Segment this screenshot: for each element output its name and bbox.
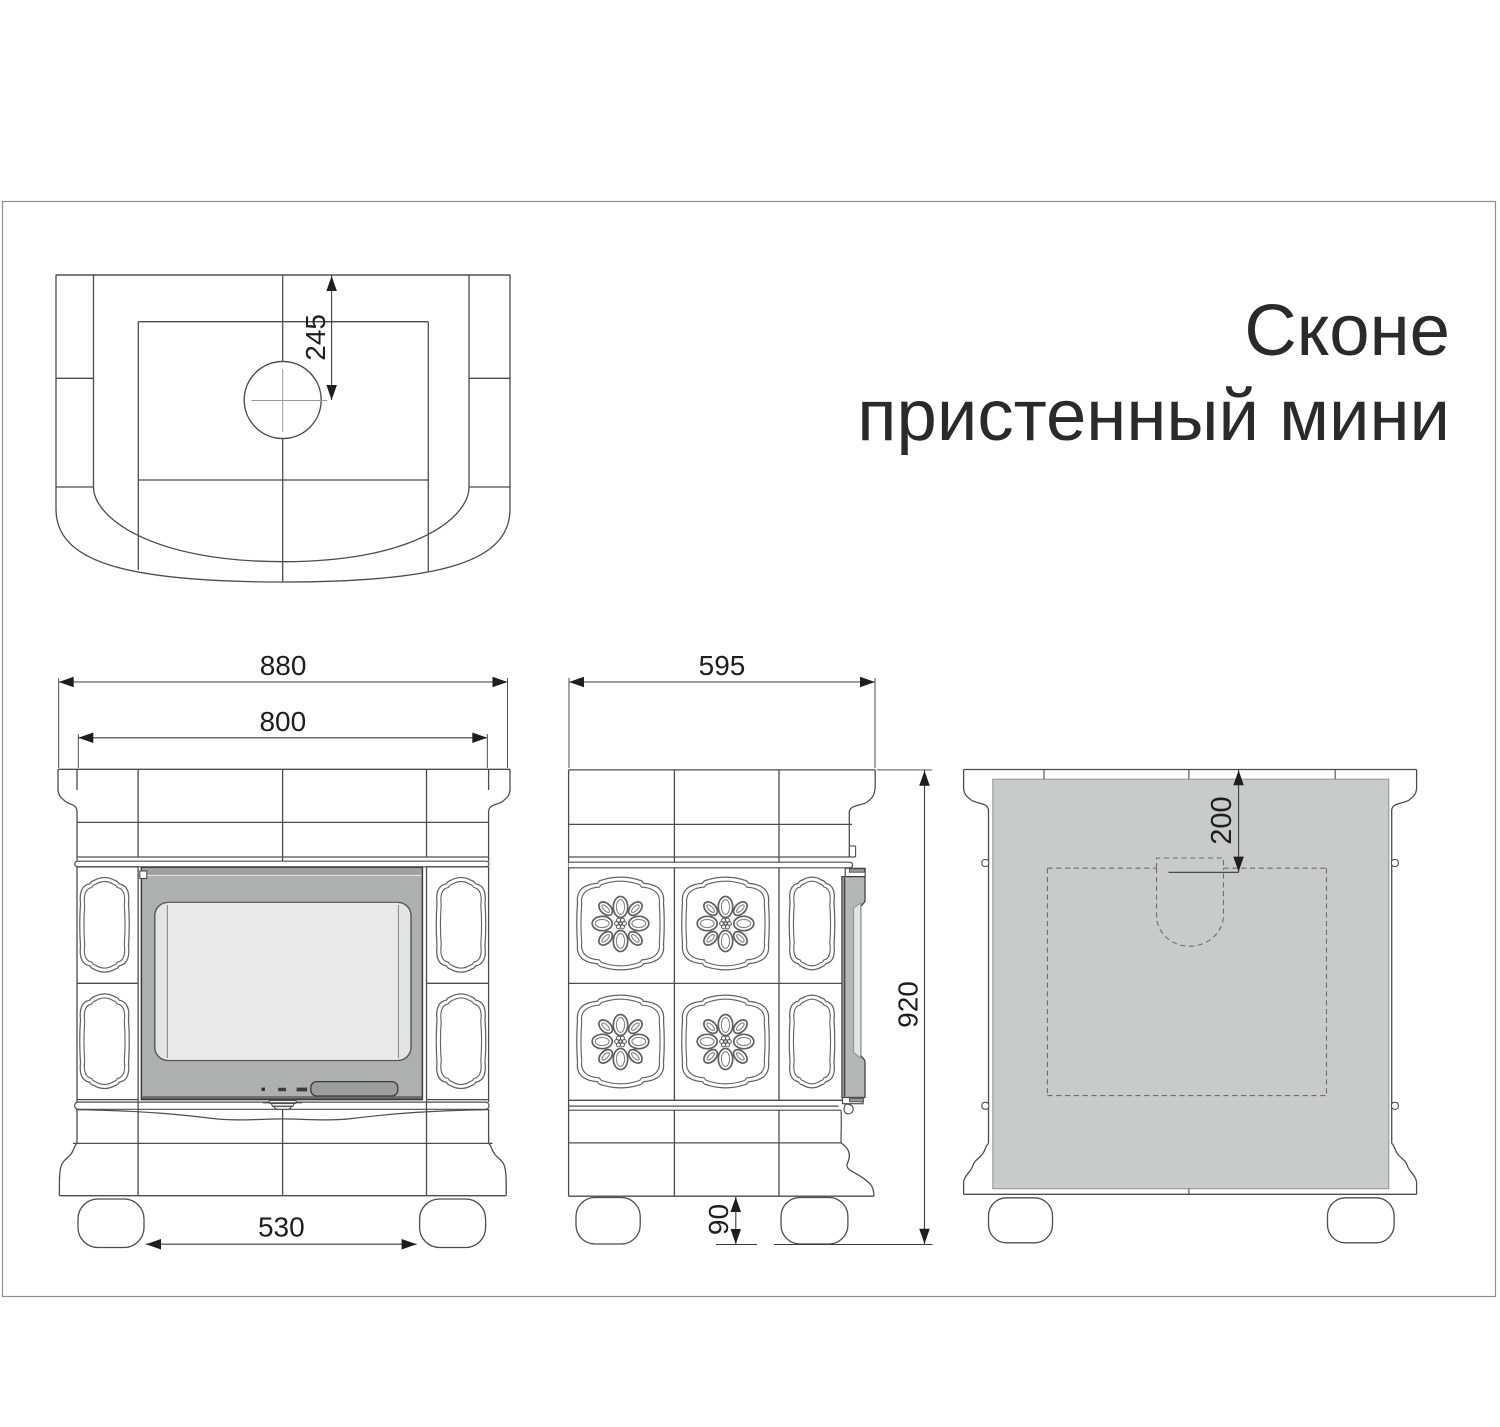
svg-text:800: 800 bbox=[259, 706, 306, 737]
svg-text:пристенный мини: пристенный мини bbox=[857, 375, 1450, 456]
svg-text:90: 90 bbox=[703, 1204, 734, 1235]
svg-text:880: 880 bbox=[260, 650, 307, 681]
svg-text:595: 595 bbox=[699, 650, 746, 681]
svg-text:200: 200 bbox=[1206, 796, 1238, 844]
svg-text:920: 920 bbox=[893, 981, 924, 1028]
svg-text:245: 245 bbox=[300, 314, 331, 361]
svg-text:Сконе: Сконе bbox=[1244, 290, 1450, 371]
svg-text:530: 530 bbox=[258, 1212, 305, 1243]
